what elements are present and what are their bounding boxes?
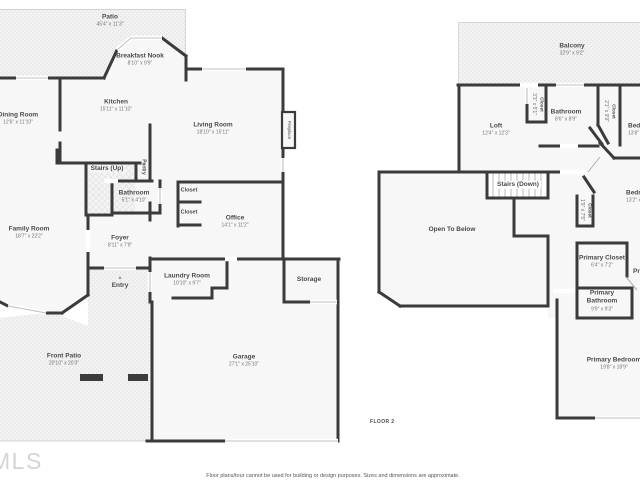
room-label-bathroom-2: Bathroom8'6" x 8'9" [551, 109, 582, 124]
floorplan-drawing [0, 0, 640, 480]
room-label-front-patio: Front Patio20'10" x 20'3" [47, 353, 81, 368]
room-label-closet-a: Closet3'3" x 5'1" [531, 93, 544, 115]
room-label-primary-closet: Primary Closet6'4" x 7'2" [579, 255, 625, 270]
room-label-balcony: Balcony32'9" x 9'2" [559, 43, 584, 58]
room-label-closet-c: Closet1'9" x 7'5" [579, 199, 592, 221]
room-label-kitchen: Kitchen15'11" x 11'10" [100, 99, 132, 114]
room-label-bedroom-top: Bedroom13'8" x 11'6" [628, 123, 640, 138]
room-label-open-to-below: Open To Below [429, 226, 476, 234]
room-label-laundry-room: Laundry Room10'10" x 9'7" [164, 273, 210, 288]
floorplan-canvas: Patio45'4" x 11'3" Breakfast Nook8'10" x… [0, 0, 640, 480]
room-label-fireplace: Fireplace [286, 121, 292, 140]
room-label-dining-room: Dining Room12'6" x 11'10" [0, 112, 38, 127]
room-label-patio: Patio45'4" x 11'3" [96, 14, 123, 29]
floor1-fills [0, 9, 339, 441]
room-label-closet-b: Closet2'1" x 9'9" [603, 100, 616, 122]
room-label-primary-bedroom: Primary Bedroom19'8" x 18'9" [587, 357, 640, 372]
room-label-stairs-down: Stairs (Down) [495, 181, 541, 189]
room-label-bedroom-mid: Bedroom13'2" x 11'4" [626, 190, 640, 205]
room-label-stairs-up: Stairs (Up) [89, 165, 126, 173]
room-label-loft: Loft12'4" x 12'3" [482, 123, 509, 138]
disclaimer-text: Floor plans/tour cannot be used for buil… [206, 473, 459, 479]
room-label-pantry: Pantry [140, 159, 147, 175]
room-label-garage: Garage27'1" x 25'10" [229, 354, 259, 369]
room-label-entry: ▲Entry [112, 276, 129, 290]
room-label-family-room: Family Room18'7" x 22'2" [9, 226, 50, 241]
room-label-closet-2: Closet [181, 209, 198, 216]
room-label-foyer: Foyer8'11" x 7'9" [108, 235, 132, 250]
room-label-closet-1: Closet [181, 187, 198, 194]
room-label-breakfast-nook: Breakfast Nook8'10" x 9'9" [116, 53, 164, 68]
room-label-primary-clipped: Primary [633, 268, 640, 276]
floor-2-tag: FLOOR 2 [370, 419, 394, 425]
room-label-bathroom: Bathroom5'1" x 4'10" [119, 190, 150, 205]
mls-watermark: MLS [0, 448, 43, 475]
room-label-primary-bathroom: Primary Bathroom9'9" x 9'3" [584, 289, 620, 312]
room-label-office: Office14'1" x 11'2" [221, 215, 248, 230]
room-label-storage: Storage [297, 276, 321, 284]
room-label-living-room: Living Room18'10" x 15'11" [193, 122, 232, 137]
